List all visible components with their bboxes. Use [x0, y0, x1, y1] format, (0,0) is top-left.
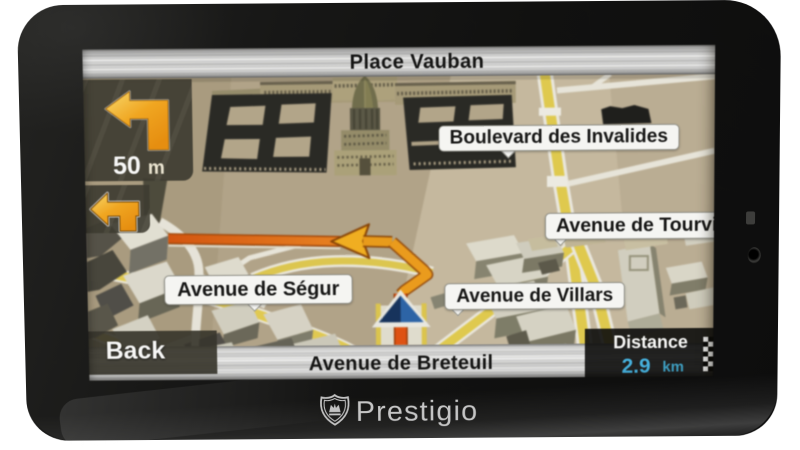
svg-text:Prestigio: Prestigio	[356, 396, 479, 428]
